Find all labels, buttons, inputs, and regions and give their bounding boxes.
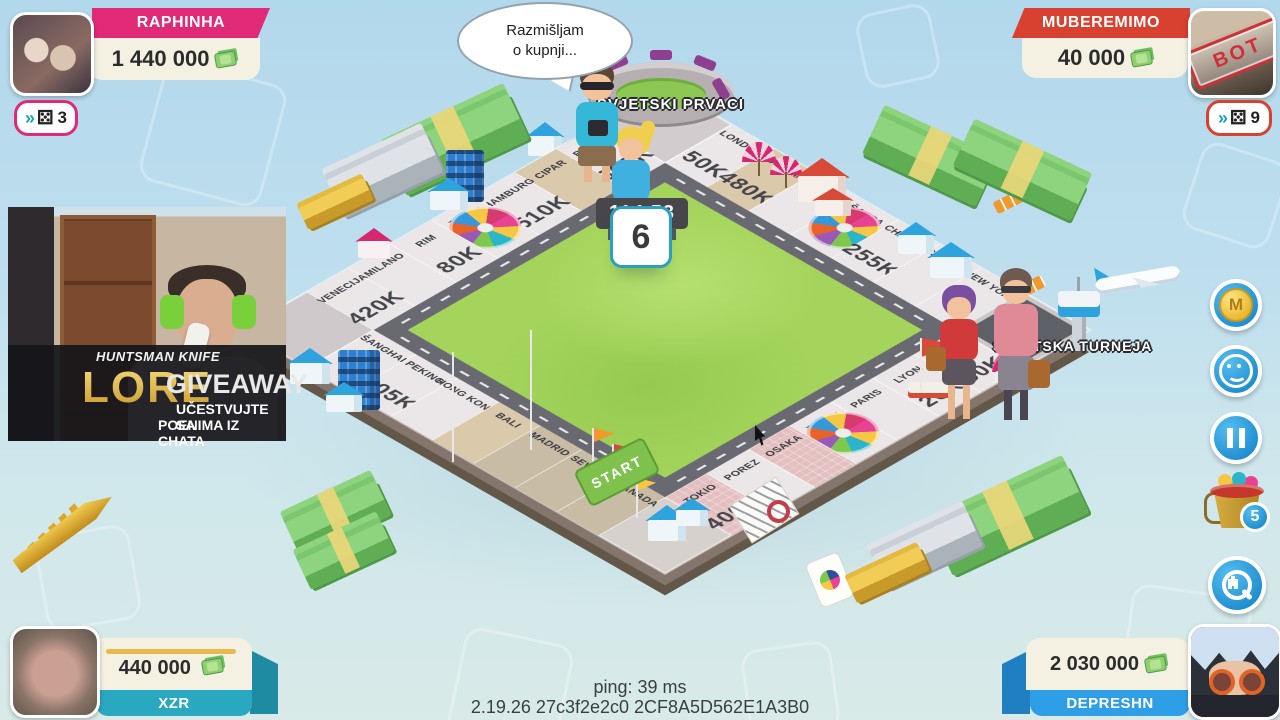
- cash-icon: [1144, 655, 1167, 673]
- tile-name: CIPAR: [532, 158, 570, 180]
- bot-stamp: BOT: [1188, 15, 1276, 90]
- headset-icon: [160, 295, 184, 329]
- tax-document-icon: [736, 488, 792, 532]
- player-name: RAPHINHA: [137, 14, 225, 32]
- zoom-icon: [1222, 570, 1252, 600]
- dice-count-badge-right: ›› ⚄ 9: [1206, 100, 1272, 136]
- player-money: 440 000: [119, 657, 191, 679]
- bucket-count-badge: 5: [1240, 502, 1270, 532]
- bali-flag-pole: [530, 330, 560, 450]
- player-money: 2 030 000: [1050, 653, 1139, 676]
- smiley-icon: [1219, 354, 1253, 388]
- ping-text: ping: 39 ms: [0, 677, 1280, 698]
- tile-name: VENECIJA: [314, 272, 370, 304]
- tile-name: POREZ: [721, 458, 763, 482]
- progress-bar: [106, 649, 236, 654]
- cash-icon: [214, 50, 237, 68]
- dice-icon: ⚄: [37, 107, 54, 130]
- character-tour-woman: [930, 285, 988, 430]
- house-tokio-icon: [676, 498, 708, 526]
- speech-bubble: Razmišljam o kupnji...: [457, 2, 633, 80]
- webcam-overlay: HUNTSMAN KNIFE LORE GIVEAWAY UČESTVUJTE …: [8, 207, 286, 441]
- giveaway-banner: HUNTSMAN KNIFE LORE GIVEAWAY UČESTVUJTE …: [8, 345, 286, 441]
- giveaway-word: GIVEAWAY: [166, 369, 308, 400]
- speech-line2: o kupnji...: [513, 41, 577, 61]
- house-rim-icon: [358, 228, 390, 258]
- cash-icon: [1130, 49, 1153, 67]
- avatar[interactable]: BOT: [1188, 8, 1276, 98]
- pause-icon: [1227, 428, 1245, 448]
- bg-square: [1178, 138, 1280, 253]
- character-tour-man: [984, 268, 1046, 426]
- fast-forward-icon: ››: [25, 108, 33, 129]
- bg-square: [853, 1, 943, 91]
- player-name: MUBEREMIMO: [1042, 14, 1160, 32]
- tile-name: BALI: [493, 411, 525, 429]
- version-text: 2.19.26 27c3f2e2c0 2CF8A5D562E1A3B0: [0, 697, 1280, 718]
- pennant-flag-icon: [636, 478, 662, 518]
- fast-forward-icon: ››: [1218, 108, 1226, 129]
- bali-flag-pole: [452, 352, 482, 462]
- coin-icon: M: [1219, 288, 1253, 322]
- game-screen: LONDON50KDUBAI480KSYDNEYŠANSACHICAGO255K…: [0, 0, 1280, 720]
- dice-icon: ⚄: [1230, 107, 1247, 130]
- house-chicago-icon: [930, 242, 972, 278]
- coin-button[interactable]: M: [1210, 279, 1262, 331]
- speech-line1: Razmišljam: [506, 21, 584, 41]
- player-money: 40 000: [1058, 45, 1125, 71]
- dice-count: 9: [1251, 108, 1260, 128]
- giveaway-line2: POENIMA IZ CHATA: [158, 417, 286, 449]
- house-shanghai-icon: [326, 382, 362, 412]
- player-money: 1 440 000: [112, 46, 210, 72]
- cash-icon: [201, 657, 224, 675]
- house-sydney-icon: [815, 188, 851, 216]
- tile-name: PARIS: [848, 388, 886, 410]
- dice-result-card: 6: [610, 206, 672, 268]
- character-tourist: [566, 60, 626, 185]
- emote-button[interactable]: [1210, 345, 1262, 397]
- tile-name: RIM: [412, 233, 439, 248]
- house-hamburg-icon: [430, 178, 468, 210]
- giveaway-item: HUNTSMAN KNIFE: [96, 349, 220, 364]
- zoom-button[interactable]: [1208, 556, 1266, 614]
- dice-count: 3: [58, 108, 67, 128]
- tile-name: OSAKA: [762, 434, 805, 459]
- pause-button[interactable]: [1210, 412, 1262, 464]
- house-chicago-icon: [898, 222, 934, 254]
- avatar[interactable]: [10, 12, 94, 96]
- dice-count-badge-left: ›› ⚄ 3: [14, 100, 78, 136]
